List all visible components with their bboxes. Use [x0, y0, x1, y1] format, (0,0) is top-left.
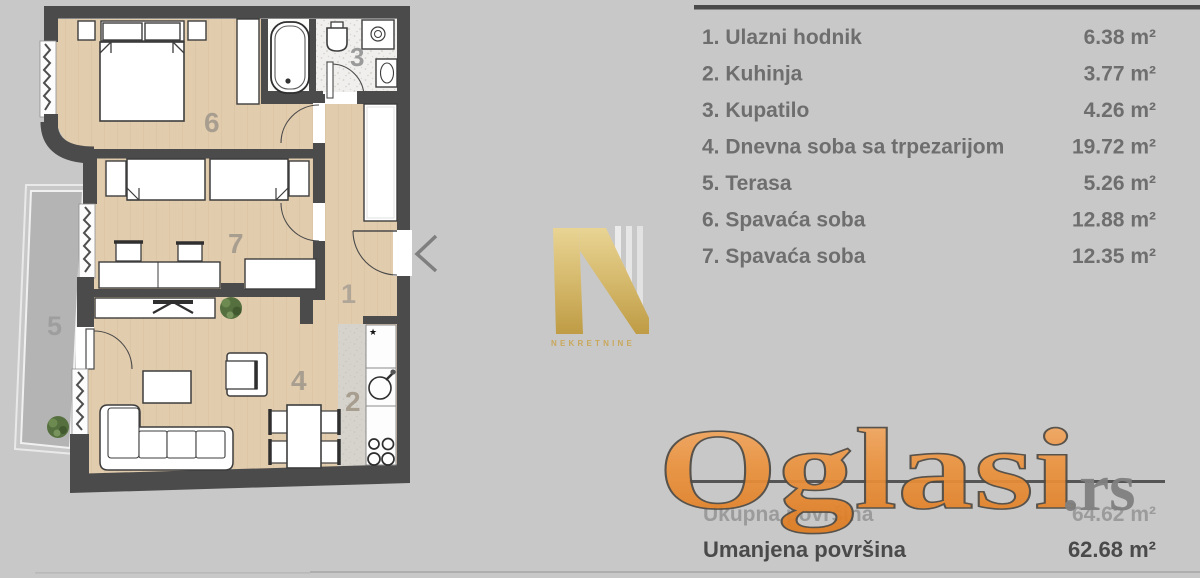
- svg-text:NEKRETNINE: NEKRETNINE: [551, 339, 635, 348]
- svg-text:5. Terasa: 5. Terasa: [702, 172, 792, 195]
- svg-text:12.88 m²: 12.88 m²: [1072, 209, 1156, 232]
- svg-text:4: 4: [291, 365, 307, 396]
- svg-text:6. Spavaća soba: 6. Spavaća soba: [702, 209, 866, 232]
- svg-text:2: 2: [345, 386, 361, 417]
- svg-text:3. Kupatilo: 3. Kupatilo: [702, 99, 809, 122]
- svg-text:3.77 m²: 3.77 m²: [1084, 63, 1156, 86]
- svg-text:1: 1: [341, 279, 356, 309]
- svg-text:2. Kuhinja: 2. Kuhinja: [702, 63, 803, 86]
- svg-text:3: 3: [350, 42, 364, 72]
- svg-text:.rs: .rs: [1062, 449, 1136, 525]
- svg-text:4. Dnevna soba sa trpezarijom: 4. Dnevna soba sa trpezarijom: [702, 136, 1004, 159]
- svg-text:7: 7: [228, 228, 244, 259]
- svg-text:7. Spavaća soba: 7. Spavaća soba: [702, 245, 866, 268]
- svg-text:Umanjena površina: Umanjena površina: [703, 537, 907, 562]
- svg-text:1. Ulazni hodnik: 1. Ulazni hodnik: [702, 26, 862, 49]
- svg-text:★: ★: [369, 327, 377, 337]
- svg-text:5: 5: [47, 311, 62, 341]
- svg-text:Oglasi: Oglasi: [658, 406, 1076, 534]
- svg-text:6.38 m²: 6.38 m²: [1084, 26, 1156, 49]
- svg-text:6: 6: [204, 107, 220, 138]
- svg-text:5.26 m²: 5.26 m²: [1084, 172, 1156, 195]
- svg-text:62.68 m²: 62.68 m²: [1068, 537, 1156, 562]
- svg-text:4.26 m²: 4.26 m²: [1084, 99, 1156, 122]
- svg-text:12.35 m²: 12.35 m²: [1072, 245, 1156, 268]
- svg-text:19.72 m²: 19.72 m²: [1072, 136, 1156, 159]
